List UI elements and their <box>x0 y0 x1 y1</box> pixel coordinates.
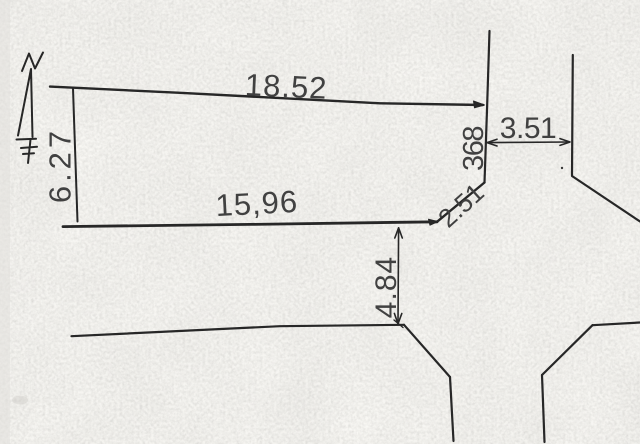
svg-text:6.27: 6.27 <box>43 127 78 203</box>
svg-text:18.52: 18.52 <box>244 67 328 106</box>
svg-text:15,96: 15,96 <box>215 184 299 223</box>
svg-text:368: 368 <box>458 127 490 171</box>
svg-text:3.51: 3.51 <box>500 112 556 145</box>
svg-text:4.84: 4.84 <box>370 256 403 318</box>
